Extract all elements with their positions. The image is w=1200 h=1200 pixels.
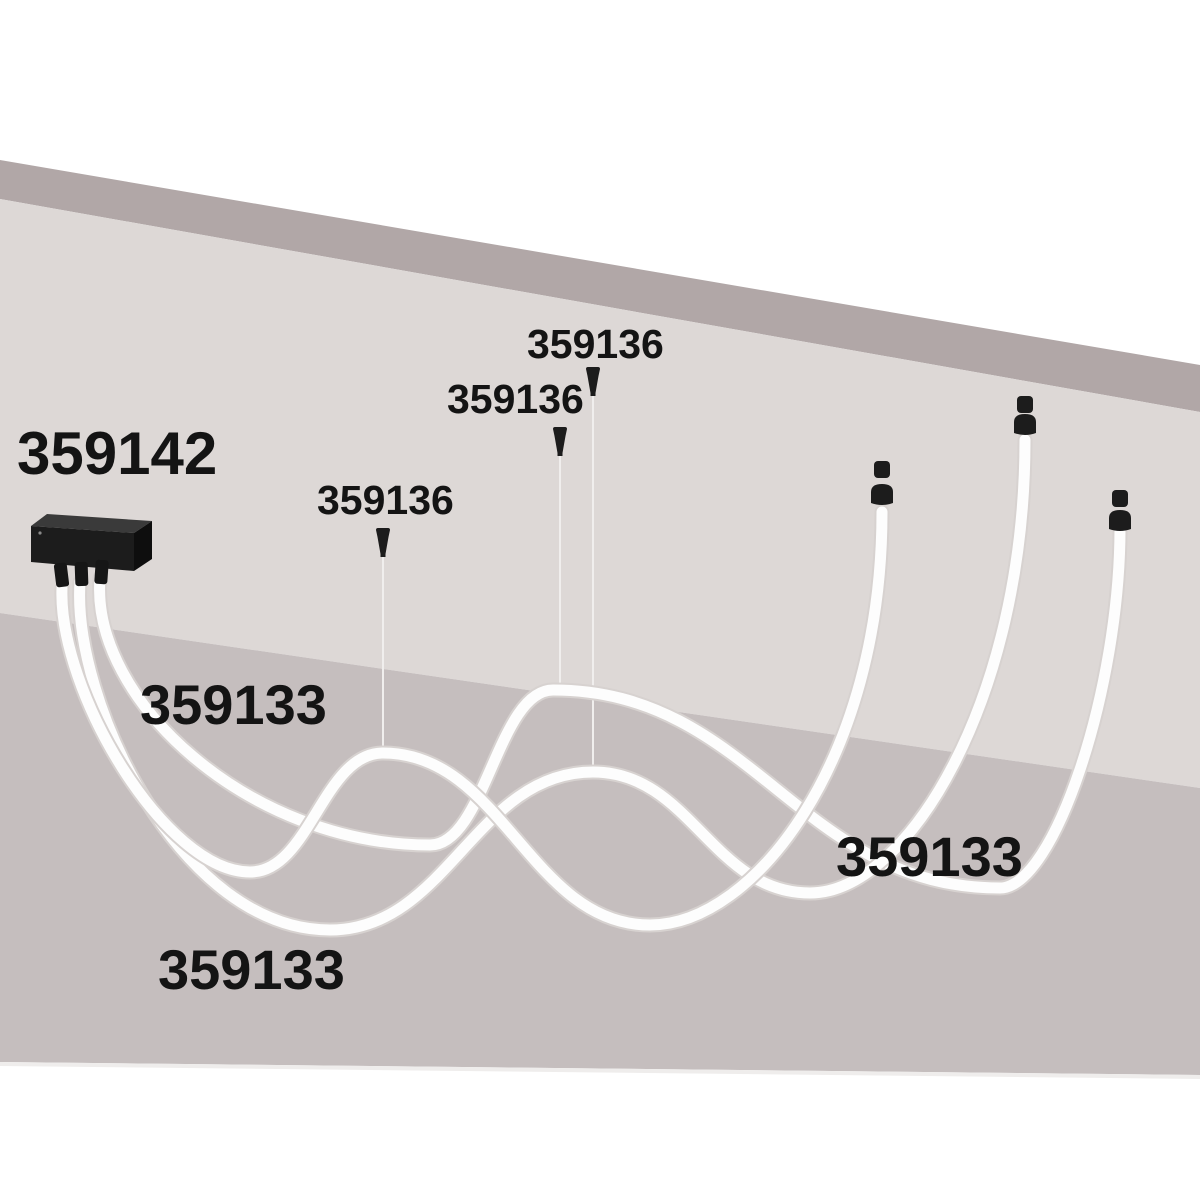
scene [0, 0, 1200, 1200]
label-flex-tube-left: 359133 [140, 677, 327, 733]
tube-end-right-cap-icon [1109, 510, 1131, 531]
tube-end-middle-knob-icon [1017, 396, 1033, 413]
driver-socket-3 [94, 560, 109, 585]
tube-end-left-knob-icon [874, 461, 890, 478]
tube-end-right-knob-icon [1112, 490, 1128, 507]
label-suspension-kit-2: 359136 [447, 379, 584, 420]
diagram-canvas: 359142 359136 359136 359136 359133 35913… [0, 0, 1200, 1200]
label-suspension-kit-1: 359136 [317, 480, 454, 521]
label-flex-tube-bottom: 359133 [158, 942, 345, 998]
label-driver-box: 359142 [17, 424, 217, 484]
driver-box-sockets [54, 560, 109, 588]
tube-end-left-cap-icon [871, 484, 893, 505]
driver-socket-2 [75, 562, 89, 586]
driver-box-screw [38, 531, 41, 534]
tube-end-middle-cap-icon [1014, 414, 1036, 435]
label-flex-tube-right: 359133 [836, 829, 1023, 885]
label-suspension-kit-3: 359136 [527, 324, 664, 365]
